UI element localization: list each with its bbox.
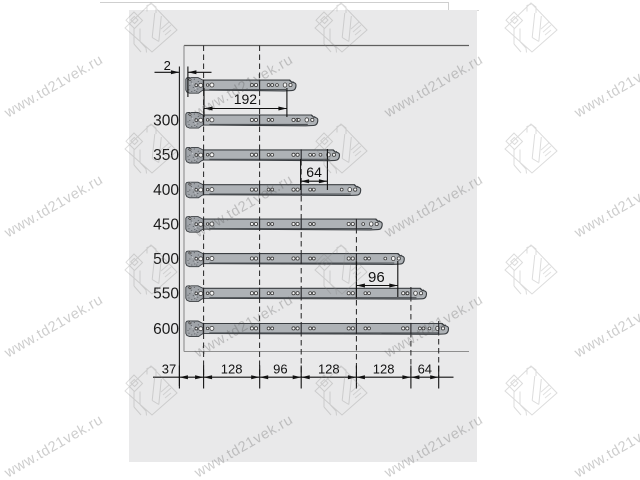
svg-text:www.td21vek.ru: www.td21vek.ru [191,412,296,480]
svg-text:www.td21vek.ru: www.td21vek.ru [1,52,106,122]
svg-text:www.td21vek.ru: www.td21vek.ru [381,172,486,242]
svg-text:www.td21vek.ru: www.td21vek.ru [381,412,486,480]
svg-text:www.td21vek.ru: www.td21vek.ru [1,292,106,362]
svg-text:www.td21vek.ru: www.td21vek.ru [1,172,106,242]
svg-text:www.td21vek.ru: www.td21vek.ru [381,52,486,122]
svg-text:www.td21vek.ru: www.td21vek.ru [571,172,640,242]
svg-text:www.td21vek.ru: www.td21vek.ru [571,292,640,362]
svg-text:www.td21vek.ru: www.td21vek.ru [571,412,640,480]
svg-text:www.td21vek.ru: www.td21vek.ru [381,292,486,362]
svg-text:www.td21vek.ru: www.td21vek.ru [191,52,296,122]
svg-text:www.td21vek.ru: www.td21vek.ru [1,412,106,480]
svg-text:www.td21vek.ru: www.td21vek.ru [571,52,640,122]
svg-text:www.td21vek.ru: www.td21vek.ru [191,292,296,362]
svg-text:www.td21vek.ru: www.td21vek.ru [191,172,296,242]
